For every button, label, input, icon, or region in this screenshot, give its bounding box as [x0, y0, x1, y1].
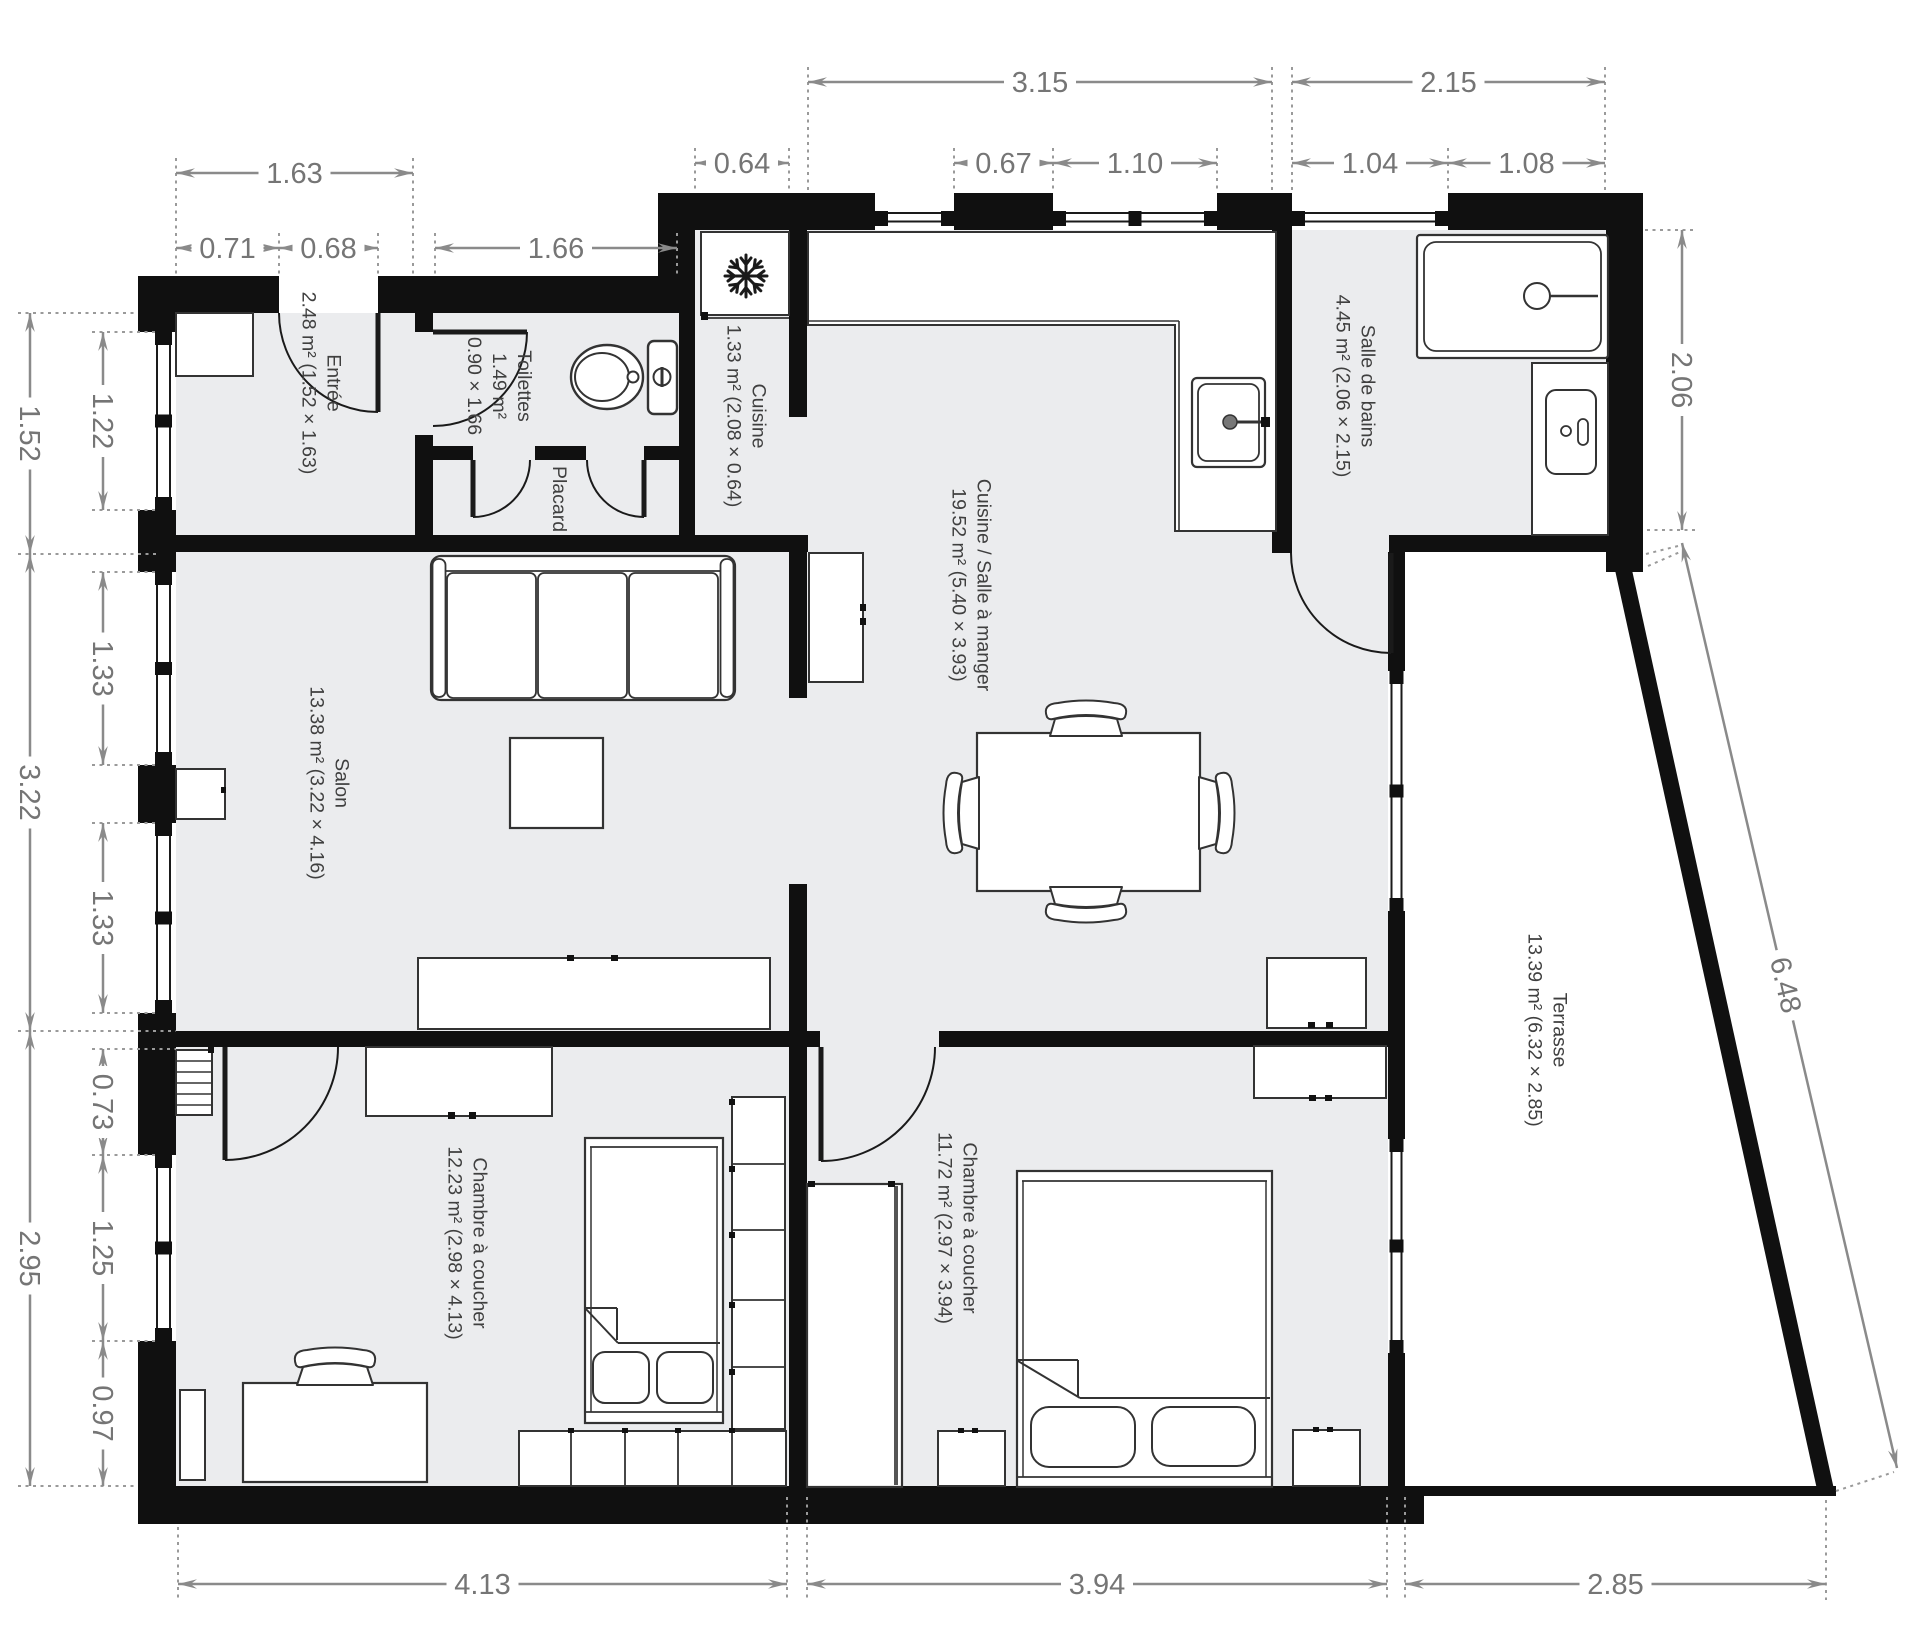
svg-text:2.15: 2.15	[1420, 67, 1476, 99]
svg-text:1.04: 1.04	[1342, 148, 1398, 180]
svg-text:2.85: 2.85	[1587, 1569, 1643, 1601]
svg-text:13.38 m² (3.22 × 4.16): 13.38 m² (3.22 × 4.16)	[306, 686, 328, 880]
svg-text:3.15: 3.15	[1012, 67, 1068, 99]
svg-text:2.06: 2.06	[1665, 352, 1697, 408]
svg-text:2.95: 2.95	[13, 1230, 45, 1286]
svg-text:Toilettes: Toilettes	[513, 350, 535, 422]
svg-text:0.71: 0.71	[199, 233, 255, 265]
svg-text:1.33: 1.33	[86, 890, 118, 946]
svg-text:Placard: Placard	[548, 466, 570, 532]
svg-text:1.25: 1.25	[86, 1220, 118, 1276]
svg-text:0.90 × 1.66: 0.90 × 1.66	[463, 337, 485, 435]
svg-text:1.22: 1.22	[86, 393, 118, 449]
svg-text:13.39 m² (6.32 × 2.85): 13.39 m² (6.32 × 2.85)	[1524, 933, 1546, 1127]
svg-text:0.67: 0.67	[975, 148, 1031, 180]
svg-text:1.49 m²: 1.49 m²	[488, 353, 510, 420]
svg-text:0.97: 0.97	[86, 1385, 118, 1441]
svg-text:1.08: 1.08	[1498, 148, 1554, 180]
svg-text:3.94: 3.94	[1069, 1569, 1125, 1601]
svg-text:3.22: 3.22	[13, 764, 45, 820]
svg-text:1.52: 1.52	[13, 405, 45, 461]
svg-text:Entrée: Entrée	[323, 354, 345, 411]
svg-text:1.33: 1.33	[86, 640, 118, 696]
svg-text:Chambre à coucher: Chambre à coucher	[959, 1142, 981, 1314]
svg-text:1.10: 1.10	[1107, 148, 1163, 180]
svg-text:1.66: 1.66	[528, 233, 584, 265]
svg-text:Cuisine: Cuisine	[748, 383, 770, 448]
svg-text:0.68: 0.68	[300, 233, 356, 265]
svg-text:11.72 m² (2.97 × 3.94): 11.72 m² (2.97 × 3.94)	[934, 1132, 956, 1324]
svg-text:Chambre à coucher: Chambre à coucher	[469, 1157, 491, 1329]
svg-text:1.63: 1.63	[266, 158, 322, 190]
svg-text:Salle de bains: Salle de bains	[1357, 325, 1379, 448]
svg-text:2.48 m² (1.52 × 1.63): 2.48 m² (1.52 × 1.63)	[298, 292, 320, 475]
svg-text:12.23 m² (2.98 × 4.13): 12.23 m² (2.98 × 4.13)	[444, 1146, 466, 1340]
svg-text:19.52 m² (5.40 × 3.93): 19.52 m² (5.40 × 3.93)	[948, 488, 970, 682]
svg-text:1.33 m² (2.08 × 0.64): 1.33 m² (2.08 × 0.64)	[723, 325, 745, 508]
svg-text:4.13: 4.13	[454, 1569, 510, 1601]
svg-text:4.45 m² (2.06 × 2.15): 4.45 m² (2.06 × 2.15)	[1332, 295, 1354, 478]
svg-text:Cuisine / Salle à manger: Cuisine / Salle à manger	[973, 479, 995, 692]
svg-text:0.73: 0.73	[86, 1074, 118, 1130]
svg-text:Terrasse: Terrasse	[1549, 993, 1571, 1068]
svg-text:0.64: 0.64	[714, 148, 770, 180]
svg-text:Salon: Salon	[331, 758, 353, 808]
